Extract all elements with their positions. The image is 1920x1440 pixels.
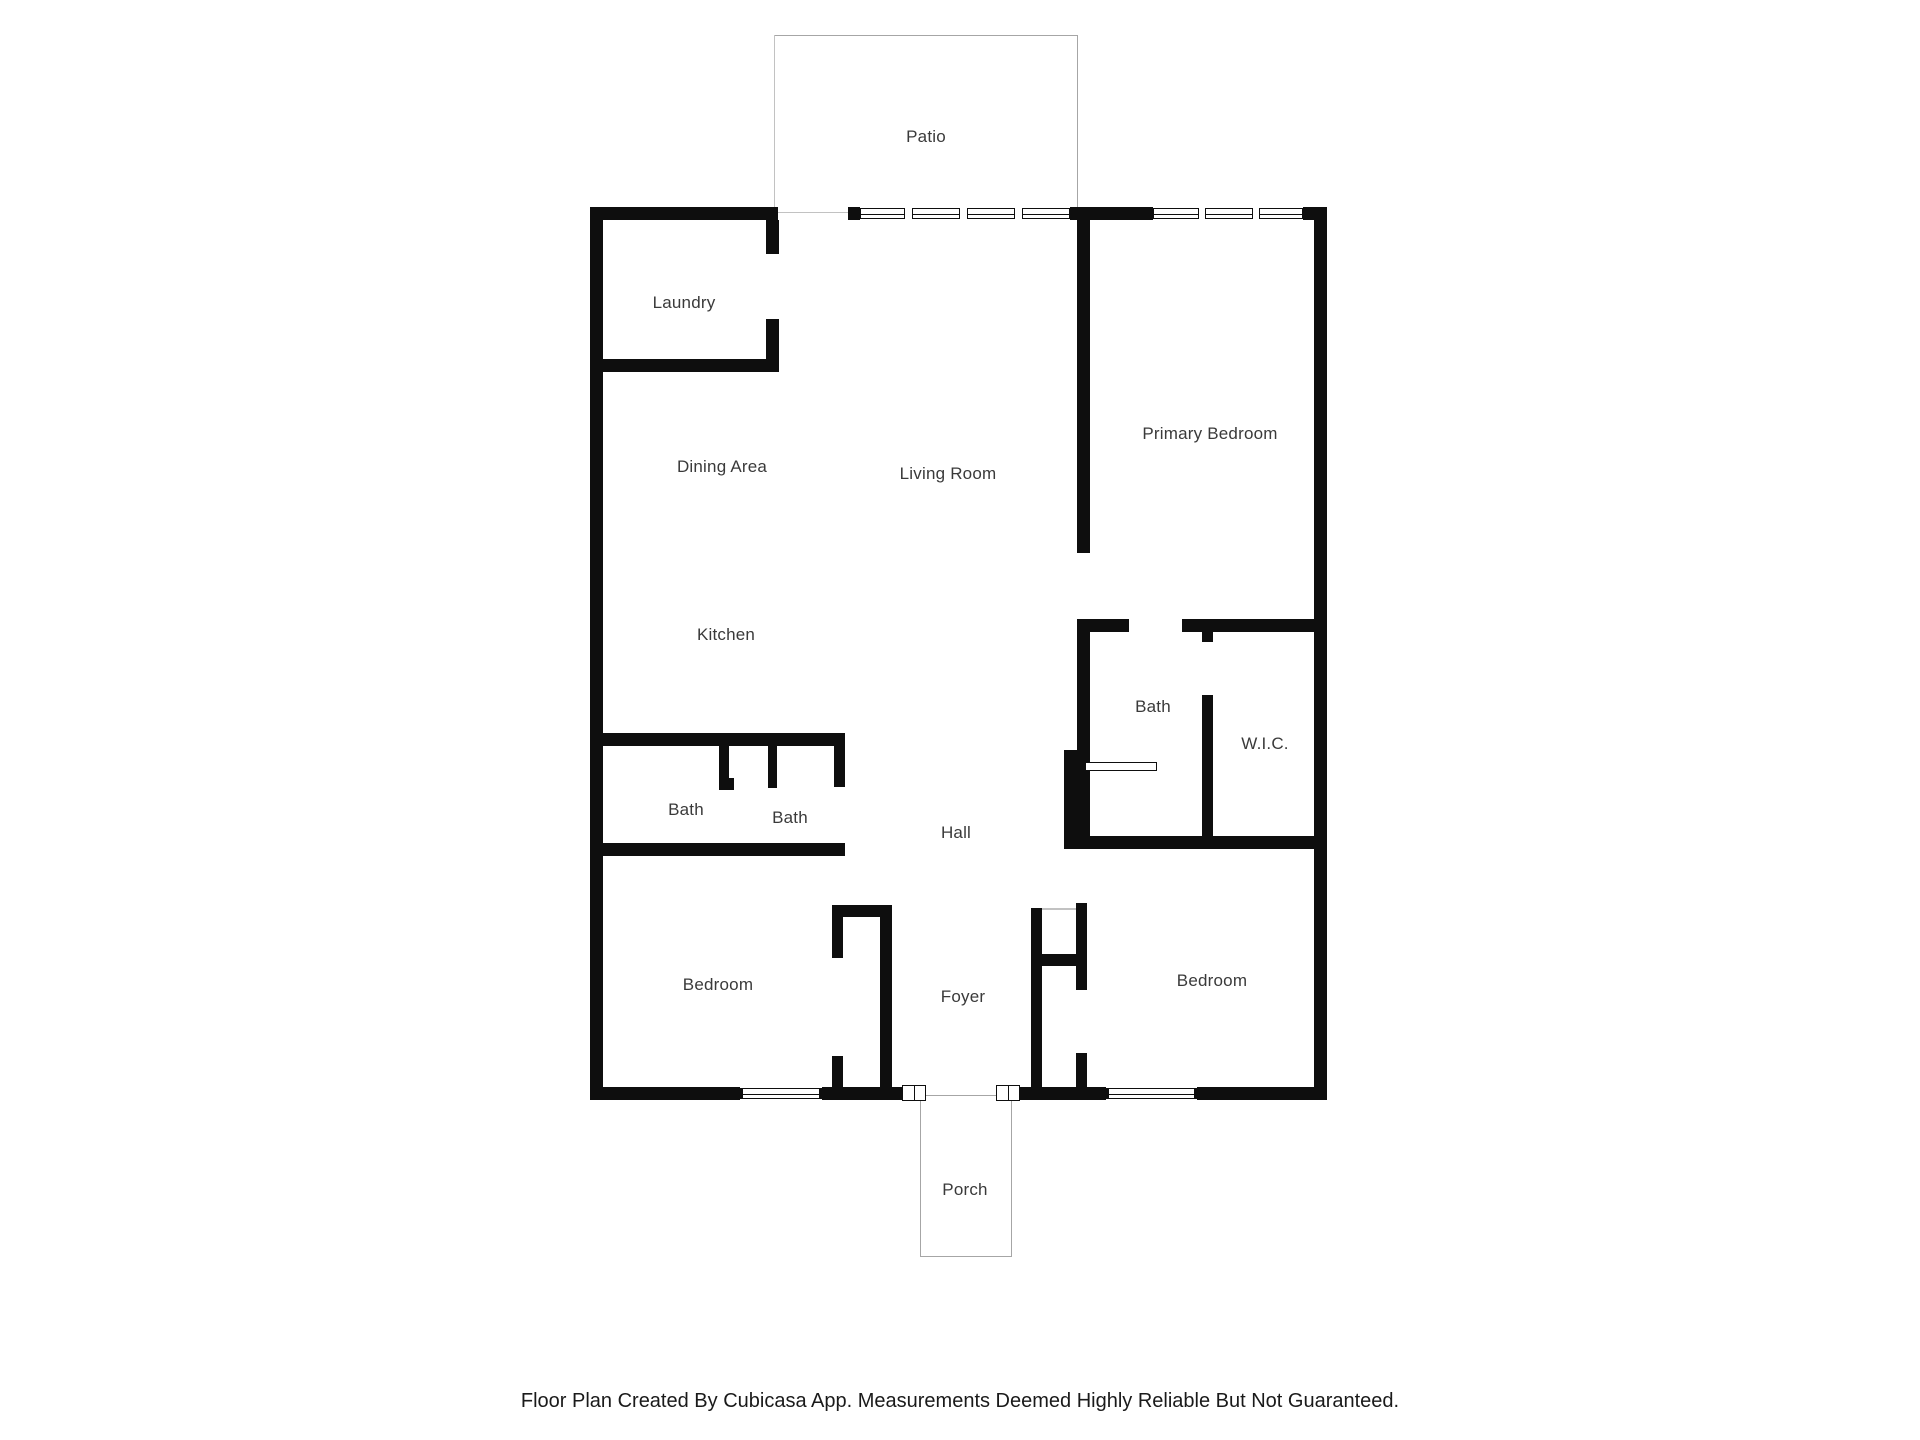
wall-segment <box>834 746 845 787</box>
wall-segment <box>832 1056 843 1100</box>
wall-segment <box>1076 1053 1087 1100</box>
window-symbol <box>1106 1088 1197 1099</box>
wall-segment <box>1197 1087 1327 1100</box>
room-label-laundry: Laundry <box>653 293 716 313</box>
window-mullion <box>1014 208 1023 219</box>
wall-segment <box>719 778 734 790</box>
wall-segment <box>1031 908 1042 1100</box>
window-mullion <box>904 208 913 219</box>
wall-segment <box>1202 619 1213 642</box>
wall-segment <box>1031 954 1087 966</box>
room-label-bath-hall-left: Bath <box>668 800 704 820</box>
room-label-bedroom-right: Bedroom <box>1177 971 1247 991</box>
bath-counter-symbol <box>1085 762 1157 771</box>
room-label-hall: Hall <box>941 823 971 843</box>
room-label-wic: W.I.C. <box>1241 734 1288 754</box>
window-symbol <box>740 1088 822 1099</box>
wall-segment <box>1077 619 1129 632</box>
room-label-porch: Porch <box>942 1180 987 1200</box>
wall-segment <box>590 359 779 372</box>
room-label-bedroom-left: Bedroom <box>683 975 753 995</box>
closet-door-threshold <box>1042 908 1076 910</box>
patio-edge-line <box>774 35 775 207</box>
wall-segment <box>880 905 892 1100</box>
room-label-patio: Patio <box>906 127 946 147</box>
patio-opening-threshold <box>778 212 848 213</box>
wall-segment <box>1070 207 1153 220</box>
floor-plan-canvas: Patio Laundry Dining Area Living Room Pr… <box>0 0 1920 1440</box>
wall-segment <box>590 207 603 1100</box>
wall-segment <box>590 843 845 856</box>
porch-outline <box>920 1095 1012 1257</box>
room-label-bath-hall-right: Bath <box>772 808 808 828</box>
room-label-kitchen: Kitchen <box>697 625 755 645</box>
wall-segment <box>1076 903 1087 990</box>
room-label-foyer: Foyer <box>941 987 985 1007</box>
footer-disclaimer: Floor Plan Created By Cubicasa App. Meas… <box>0 1390 1920 1413</box>
window-symbol <box>996 1085 1020 1101</box>
window-mullion <box>959 208 968 219</box>
wall-segment <box>768 746 777 788</box>
wall-segment <box>1077 619 1090 750</box>
wall-segment <box>1064 836 1314 849</box>
window-symbol <box>1153 208 1303 219</box>
wall-segment <box>1077 220 1090 553</box>
room-label-bath-primary: Bath <box>1135 697 1171 717</box>
room-label-living-room: Living Room <box>900 464 997 484</box>
wall-segment <box>590 207 778 220</box>
wall-segment <box>848 207 860 220</box>
wall-segment <box>1314 207 1327 1100</box>
wall-segment <box>590 733 845 746</box>
room-label-dining-area: Dining Area <box>677 457 767 477</box>
wall-segment <box>1202 695 1213 838</box>
window-mullion <box>1252 208 1260 219</box>
window-symbol <box>902 1085 926 1101</box>
window-mullion <box>1198 208 1206 219</box>
wall-segment <box>590 1087 740 1100</box>
room-label-primary-bedroom: Primary Bedroom <box>1142 424 1277 444</box>
wall-segment <box>766 220 779 254</box>
patio-outline <box>774 35 1078 213</box>
